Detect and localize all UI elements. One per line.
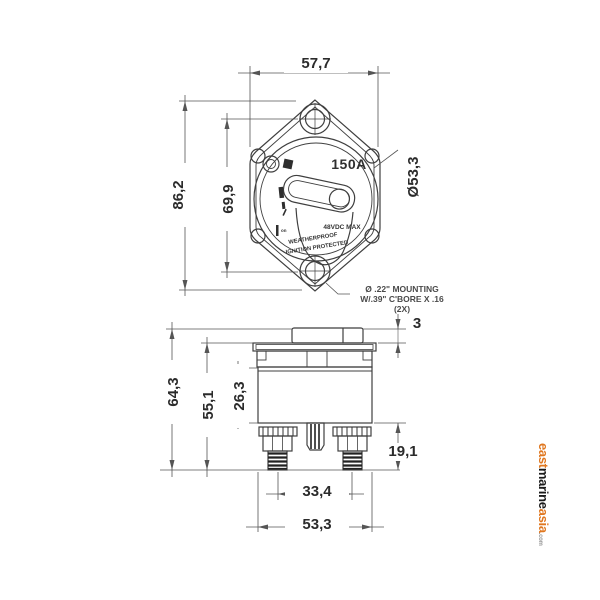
dim-label-flange-to-base-height: 55,1	[200, 373, 218, 437]
actuator-knob	[292, 328, 363, 343]
mounting-note-line1: Ø .22" MOUNTING	[338, 284, 466, 294]
flange-cap	[253, 343, 376, 367]
dim-label-stud-spacing: 33,4	[285, 483, 349, 501]
dim-57-7-lines	[238, 66, 390, 147]
watermark-asia: asia	[536, 509, 551, 533]
dim-label-face-diameter: Ø53,3	[405, 140, 423, 214]
drawing-canvas	[0, 0, 600, 600]
dim-label-flange-height: 86,2	[170, 163, 188, 227]
center-blade-tab	[307, 423, 324, 450]
side-view-drawing	[160, 328, 400, 470]
dim-label-body-height: 26,3	[231, 364, 249, 428]
terminal-stud-right	[333, 427, 371, 470]
dim-label-body-width: 53,3	[285, 516, 349, 534]
dim-label-flange-width: 57,7	[284, 55, 348, 73]
flange-corner-lobe	[365, 229, 379, 243]
watermark: eastmarineasia.com	[535, 443, 551, 546]
watermark-suffix: .com	[537, 533, 543, 546]
terminal-stud-left	[259, 427, 297, 470]
mounting-note-line2: W/.39" C'BORE X .16	[338, 294, 466, 304]
breaker-voltage-label: 48VDC MAX	[314, 224, 370, 231]
on-position-label: on	[281, 228, 293, 233]
breaker-body	[258, 367, 372, 423]
dim-label-hole-spacing: 69,9	[220, 167, 238, 231]
top-view-drawing	[250, 100, 380, 291]
breaker-rating-label: 150A	[327, 156, 371, 172]
dim-label-knob-height: 3	[407, 315, 427, 333]
dim-label-total-height: 64,3	[165, 360, 183, 424]
dim-label-stud-height: 19,1	[371, 443, 435, 461]
mounting-hole-top	[299, 103, 331, 135]
mounting-note-line3: (2X)	[338, 304, 466, 314]
face-square-mark	[283, 159, 294, 170]
technical-drawing-page: 57,7 86,2 69,9 Ø53,3 Ø .22" MOUNTING W/.…	[0, 0, 600, 600]
breaker-lever	[281, 173, 357, 214]
watermark-east: east	[536, 443, 551, 468]
watermark-marine: marine	[536, 468, 551, 509]
